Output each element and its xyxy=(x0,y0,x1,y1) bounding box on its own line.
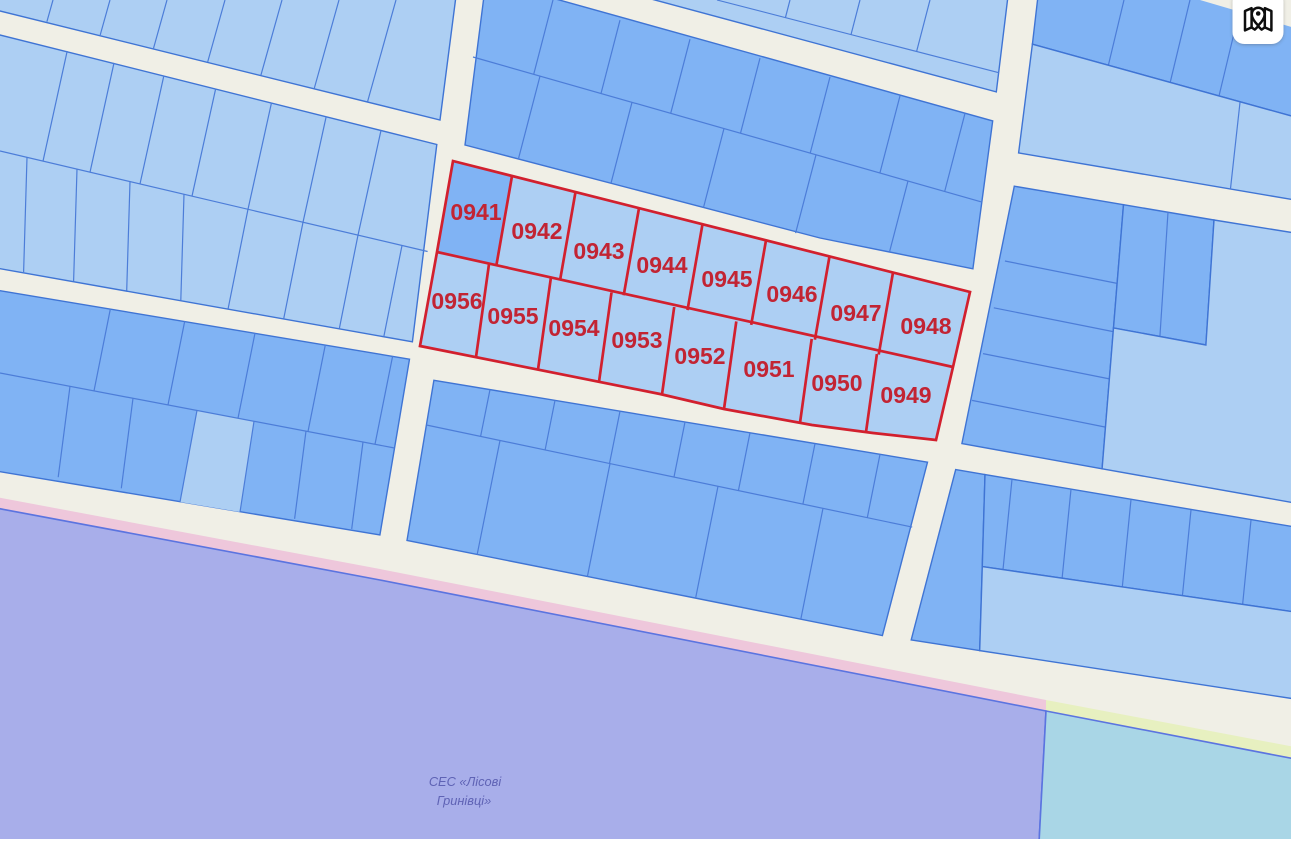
svg-text:0941: 0941 xyxy=(450,199,501,225)
svg-text:0950: 0950 xyxy=(811,370,862,396)
svg-text:0945: 0945 xyxy=(701,266,752,292)
svg-text:0947: 0947 xyxy=(830,300,881,326)
svg-text:0956: 0956 xyxy=(431,288,482,314)
svg-text:0955: 0955 xyxy=(487,303,538,329)
svg-text:0946: 0946 xyxy=(766,281,817,307)
svg-text:0952: 0952 xyxy=(674,343,725,369)
svg-text:0943: 0943 xyxy=(573,238,624,264)
svg-text:0944: 0944 xyxy=(636,252,687,278)
svg-text:СЕС «Лісові: СЕС «Лісові xyxy=(429,774,503,789)
svg-text:0953: 0953 xyxy=(611,327,662,353)
svg-text:0951: 0951 xyxy=(743,356,794,382)
svg-text:0954: 0954 xyxy=(548,315,599,341)
svg-text:Гринівці»: Гринівці» xyxy=(437,793,491,808)
svg-text:0949: 0949 xyxy=(880,382,931,408)
svg-text:0948: 0948 xyxy=(900,313,951,339)
svg-text:0942: 0942 xyxy=(511,218,562,244)
